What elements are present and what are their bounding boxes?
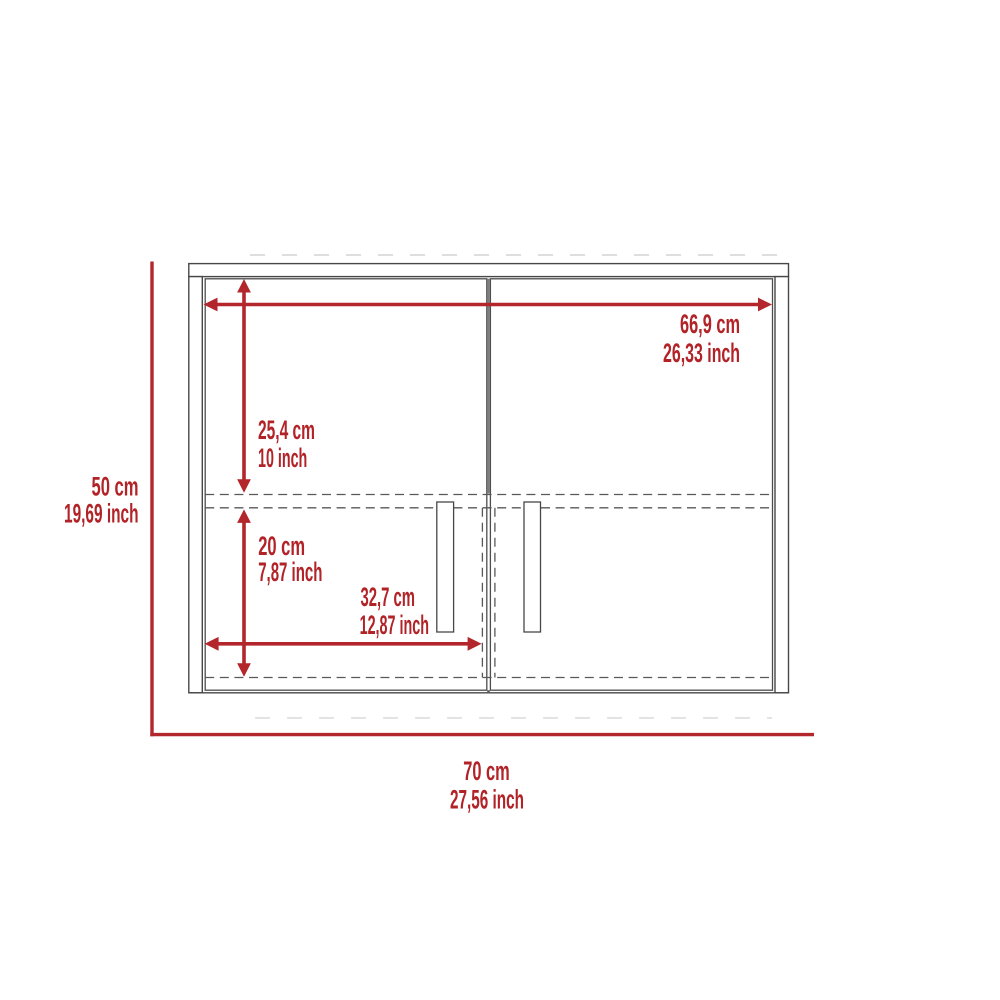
svg-text:19,69 inch: 19,69 inch <box>64 499 139 529</box>
svg-text:10 inch: 10 inch <box>258 443 307 473</box>
svg-text:12,87 inch: 12,87 inch <box>360 610 429 640</box>
svg-text:50 cm: 50 cm <box>92 471 139 501</box>
svg-text:66,9 cm: 66,9 cm <box>680 309 740 339</box>
svg-text:25,4 cm: 25,4 cm <box>258 415 315 445</box>
svg-text:27,56 inch: 27,56 inch <box>450 785 524 815</box>
svg-text:26,33 inch: 26,33 inch <box>663 338 740 368</box>
svg-text:7,87 inch: 7,87 inch <box>258 557 322 587</box>
svg-text:32,7 cm: 32,7 cm <box>361 582 416 612</box>
svg-text:70 cm: 70 cm <box>463 756 510 786</box>
